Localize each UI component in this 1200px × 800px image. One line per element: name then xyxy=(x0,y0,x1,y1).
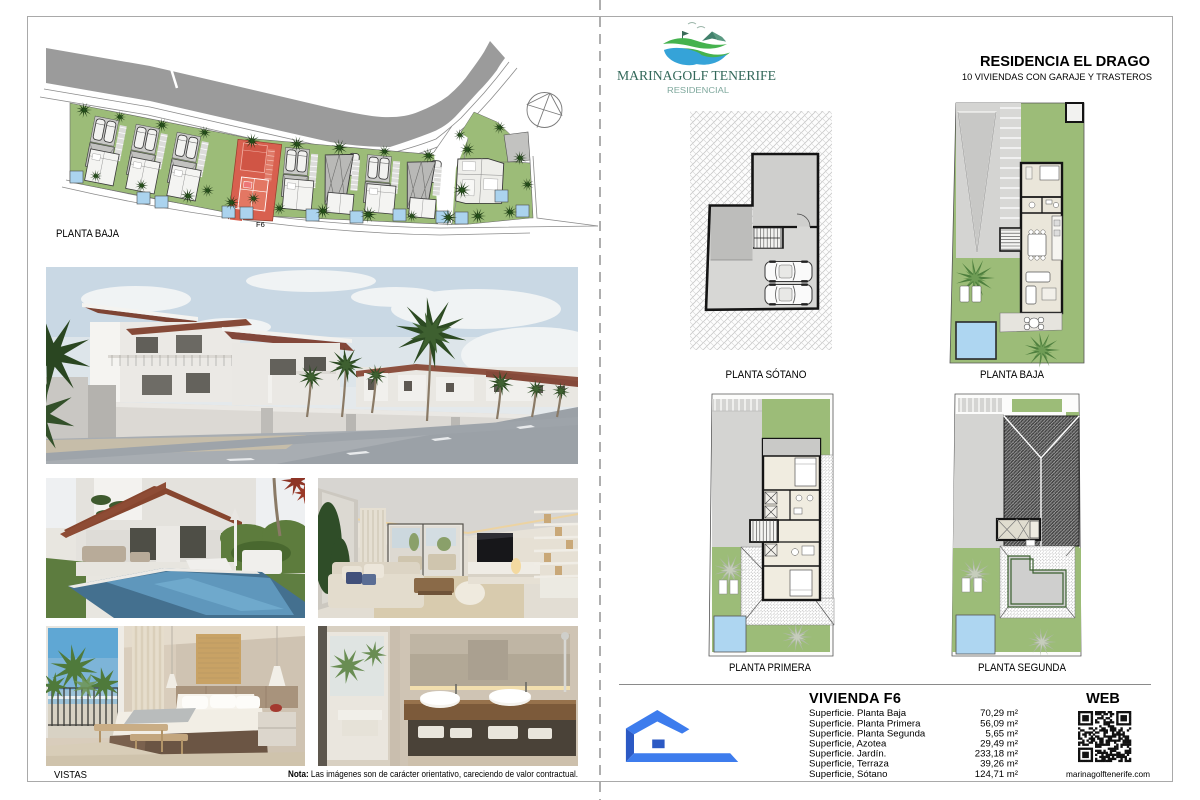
svg-text:PLANTA SÓTANO: PLANTA SÓTANO xyxy=(726,368,807,381)
svg-text:VIVIENDA F6: VIVIENDA F6 xyxy=(809,691,901,707)
svg-text:Superficie, Sótano: Superficie, Sótano xyxy=(809,769,887,780)
svg-text:VISTAS: VISTAS xyxy=(54,769,87,781)
svg-text:124,71 m²: 124,71 m² xyxy=(975,769,1019,780)
svg-text:RESIDENCIAL: RESIDENCIAL xyxy=(667,86,730,95)
svg-text:PLANTA BAJA: PLANTA BAJA xyxy=(56,228,120,240)
svg-text:F6: F6 xyxy=(256,220,265,229)
svg-text:Nota: Las imágenes son de cará: Nota: Las imágenes son de carácter orien… xyxy=(288,769,578,779)
svg-text:10 VIVIENDAS CON GARAJE Y TRAS: 10 VIVIENDAS CON GARAJE Y TRASTEROS xyxy=(962,72,1152,83)
svg-text:WEB: WEB xyxy=(1086,691,1120,707)
svg-text:MARINAGOLF TENERIFE: MARINAGOLF TENERIFE xyxy=(617,68,776,83)
svg-text:PLANTA PRIMERA: PLANTA PRIMERA xyxy=(729,662,812,674)
svg-text:PLANTA BAJA: PLANTA BAJA xyxy=(980,369,1045,381)
svg-text:RESIDENCIA EL DRAGO: RESIDENCIA EL DRAGO xyxy=(980,54,1150,70)
svg-text:marinagolftenerife.com: marinagolftenerife.com xyxy=(1066,769,1150,779)
svg-text:PLANTA SEGUNDA: PLANTA SEGUNDA xyxy=(978,662,1067,674)
